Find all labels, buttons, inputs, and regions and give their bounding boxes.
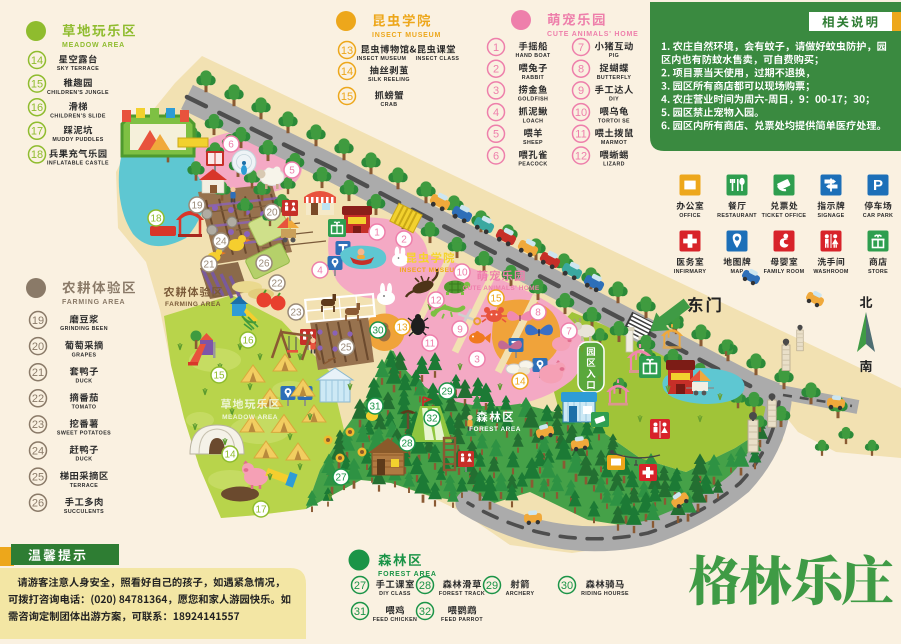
svg-text:DUCK: DUCK [76, 457, 93, 463]
svg-text:SHEEP: SHEEP [523, 140, 543, 146]
svg-text:21: 21 [203, 260, 215, 271]
svg-text:3: 3 [493, 85, 499, 97]
svg-text:TORTOI SE: TORTOI SE [598, 118, 630, 124]
svg-text:7: 7 [578, 42, 584, 54]
svg-text:1: 1 [493, 42, 499, 54]
svg-text:PIG: PIG [609, 53, 619, 59]
svg-text:OFFICE: OFFICE [679, 213, 701, 219]
svg-text:14: 14 [224, 450, 236, 461]
svg-text:FEED PARROT: FEED PARROT [441, 617, 483, 623]
svg-text:TOMATO: TOMATO [72, 405, 97, 411]
svg-text:28: 28 [419, 580, 431, 592]
svg-text:GRAPES: GRAPES [72, 352, 97, 358]
svg-text:8: 8 [535, 308, 541, 319]
svg-text:14: 14 [31, 55, 43, 67]
svg-text:FOREST TRACK: FOREST TRACK [439, 591, 485, 597]
svg-text:15: 15 [213, 371, 225, 382]
svg-text:TERRACE: TERRACE [70, 483, 98, 489]
svg-text:25: 25 [32, 471, 44, 483]
svg-text:DIY: DIY [609, 97, 619, 103]
svg-text:LIZARD: LIZARD [603, 162, 625, 168]
svg-text:FARMING AREA: FARMING AREA [165, 301, 221, 308]
svg-text:17: 17 [255, 505, 267, 516]
svg-text:PEACOCK: PEACOCK [518, 162, 547, 168]
svg-text:RESTAURANT: RESTAURANT [717, 213, 757, 219]
svg-text:9: 9 [578, 85, 584, 97]
svg-text:26: 26 [32, 498, 44, 510]
svg-text:19: 19 [32, 315, 44, 327]
svg-text:5: 5 [289, 166, 295, 177]
svg-text:11: 11 [425, 339, 436, 350]
svg-text:11: 11 [575, 129, 586, 141]
svg-text:24: 24 [215, 237, 227, 248]
svg-text:HAND BOAT: HAND BOAT [516, 53, 551, 59]
svg-text:RIDING HOURSE: RIDING HOURSE [581, 591, 629, 597]
svg-text:12: 12 [575, 150, 587, 162]
svg-text:24: 24 [32, 445, 44, 457]
svg-text:20: 20 [32, 341, 44, 353]
svg-text:LOACH: LOACH [523, 118, 544, 124]
svg-text:22: 22 [32, 393, 44, 405]
svg-text:19: 19 [191, 201, 203, 212]
svg-text:29: 29 [441, 387, 453, 398]
svg-text:20: 20 [266, 208, 278, 219]
svg-text:P: P [873, 177, 883, 194]
svg-text:SILK REELING: SILK REELING [368, 77, 410, 83]
svg-text:15: 15 [490, 294, 502, 305]
svg-text:GRINDING BEEN: GRINDING BEEN [60, 326, 108, 332]
svg-text:3: 3 [474, 355, 480, 366]
svg-text:6: 6 [493, 150, 499, 162]
svg-text:22: 22 [271, 279, 283, 290]
svg-text:10: 10 [575, 107, 587, 119]
svg-text:23: 23 [32, 419, 44, 431]
svg-text:13: 13 [396, 323, 408, 334]
svg-text:30: 30 [372, 326, 384, 337]
svg-text:CUTE ANIMALS' HOME: CUTE ANIMALS' HOME [547, 31, 639, 38]
svg-text:SWEET POTATOES: SWEET POTATOES [57, 431, 111, 437]
svg-text:MUDDY PUDDLES: MUDDY PUDDLES [52, 137, 103, 143]
svg-text:31: 31 [369, 402, 381, 413]
svg-text:CRAB: CRAB [381, 102, 398, 108]
svg-text:7: 7 [566, 327, 572, 338]
svg-text:TICKET OFFICE: TICKET OFFICE [762, 213, 807, 219]
svg-text:2: 2 [401, 235, 407, 246]
svg-text:12: 12 [430, 296, 442, 307]
svg-text:15: 15 [31, 78, 43, 90]
svg-text:ARCHERY: ARCHERY [506, 591, 535, 597]
svg-text:4: 4 [493, 107, 499, 119]
svg-text:14: 14 [341, 66, 353, 78]
svg-text:16: 16 [31, 102, 43, 114]
svg-text:MARMOT: MARMOT [601, 140, 628, 146]
svg-text:18: 18 [31, 149, 43, 161]
svg-text:2: 2 [493, 64, 499, 76]
svg-text:27: 27 [335, 473, 347, 484]
svg-text:18: 18 [150, 214, 162, 225]
svg-text:CHILDREN'S SLIDE: CHILDREN'S SLIDE [50, 113, 106, 119]
svg-text:FOREST AREA: FOREST AREA [469, 426, 521, 433]
svg-text:MAP: MAP [731, 269, 744, 275]
svg-text:SKY TERRACE: SKY TERRACE [57, 66, 99, 72]
svg-text:1: 1 [374, 228, 380, 239]
svg-text:STORE: STORE [868, 269, 888, 275]
svg-text:26: 26 [258, 259, 270, 270]
svg-text:16: 16 [242, 336, 254, 347]
svg-text:INSECT MUSEUM: INSECT MUSEUM [372, 32, 441, 39]
svg-text:8: 8 [578, 64, 584, 76]
svg-text:FARMING AREA: FARMING AREA [62, 299, 125, 306]
svg-text:32: 32 [426, 414, 438, 425]
svg-text:CHILDREN'S JUNGLE: CHILDREN'S JUNGLE [47, 90, 109, 96]
svg-text:INSECT MUSEUM INSECT CLASS: INSECT MUSEUM INSECT CLASS [357, 56, 460, 62]
svg-text:10: 10 [456, 268, 468, 279]
svg-text:27: 27 [354, 580, 366, 592]
svg-text:13: 13 [341, 45, 353, 57]
svg-text:INFLATABLE CASTLE: INFLATABLE CASTLE [47, 161, 109, 167]
svg-text:14: 14 [514, 377, 526, 388]
svg-text:CAR PARK: CAR PARK [863, 213, 893, 219]
svg-text:6: 6 [228, 140, 234, 151]
svg-text:INFIRMARY: INFIRMARY [674, 269, 707, 275]
svg-text:DUCK: DUCK [76, 378, 93, 384]
svg-text:17: 17 [31, 126, 43, 138]
svg-text:9: 9 [457, 325, 463, 336]
svg-text:INSECT MUSEUM: INSECT MUSEUM [399, 267, 460, 274]
svg-text:23: 23 [290, 308, 302, 319]
svg-text:21: 21 [32, 367, 44, 379]
svg-text:15: 15 [341, 91, 353, 103]
svg-text:5: 5 [493, 129, 499, 141]
svg-text:4: 4 [317, 266, 323, 277]
svg-text:29: 29 [486, 580, 498, 592]
svg-text:30: 30 [561, 580, 573, 592]
svg-text:FEED CHICKEN: FEED CHICKEN [373, 617, 418, 623]
svg-text:28: 28 [401, 439, 413, 450]
svg-text:SUCCULENTS: SUCCULENTS [64, 509, 104, 515]
svg-text:SIGNAGE: SIGNAGE [818, 213, 845, 219]
svg-text:DIY CLASS: DIY CLASS [379, 591, 411, 597]
svg-text:MEADOW AREA: MEADOW AREA [222, 414, 278, 421]
svg-text:25: 25 [340, 343, 352, 354]
svg-text:FAMILY ROOM: FAMILY ROOM [764, 269, 805, 275]
svg-text:WASHROOM: WASHROOM [813, 269, 849, 275]
svg-text:RABBIT: RABBIT [522, 75, 545, 81]
svg-text:BUTTERFLY: BUTTERFLY [597, 75, 632, 81]
svg-text:GOLDFISH: GOLDFISH [518, 97, 549, 103]
svg-text:31: 31 [354, 606, 366, 618]
svg-text:MEADOW AREA: MEADOW AREA [62, 42, 125, 49]
svg-text:32: 32 [419, 606, 431, 618]
